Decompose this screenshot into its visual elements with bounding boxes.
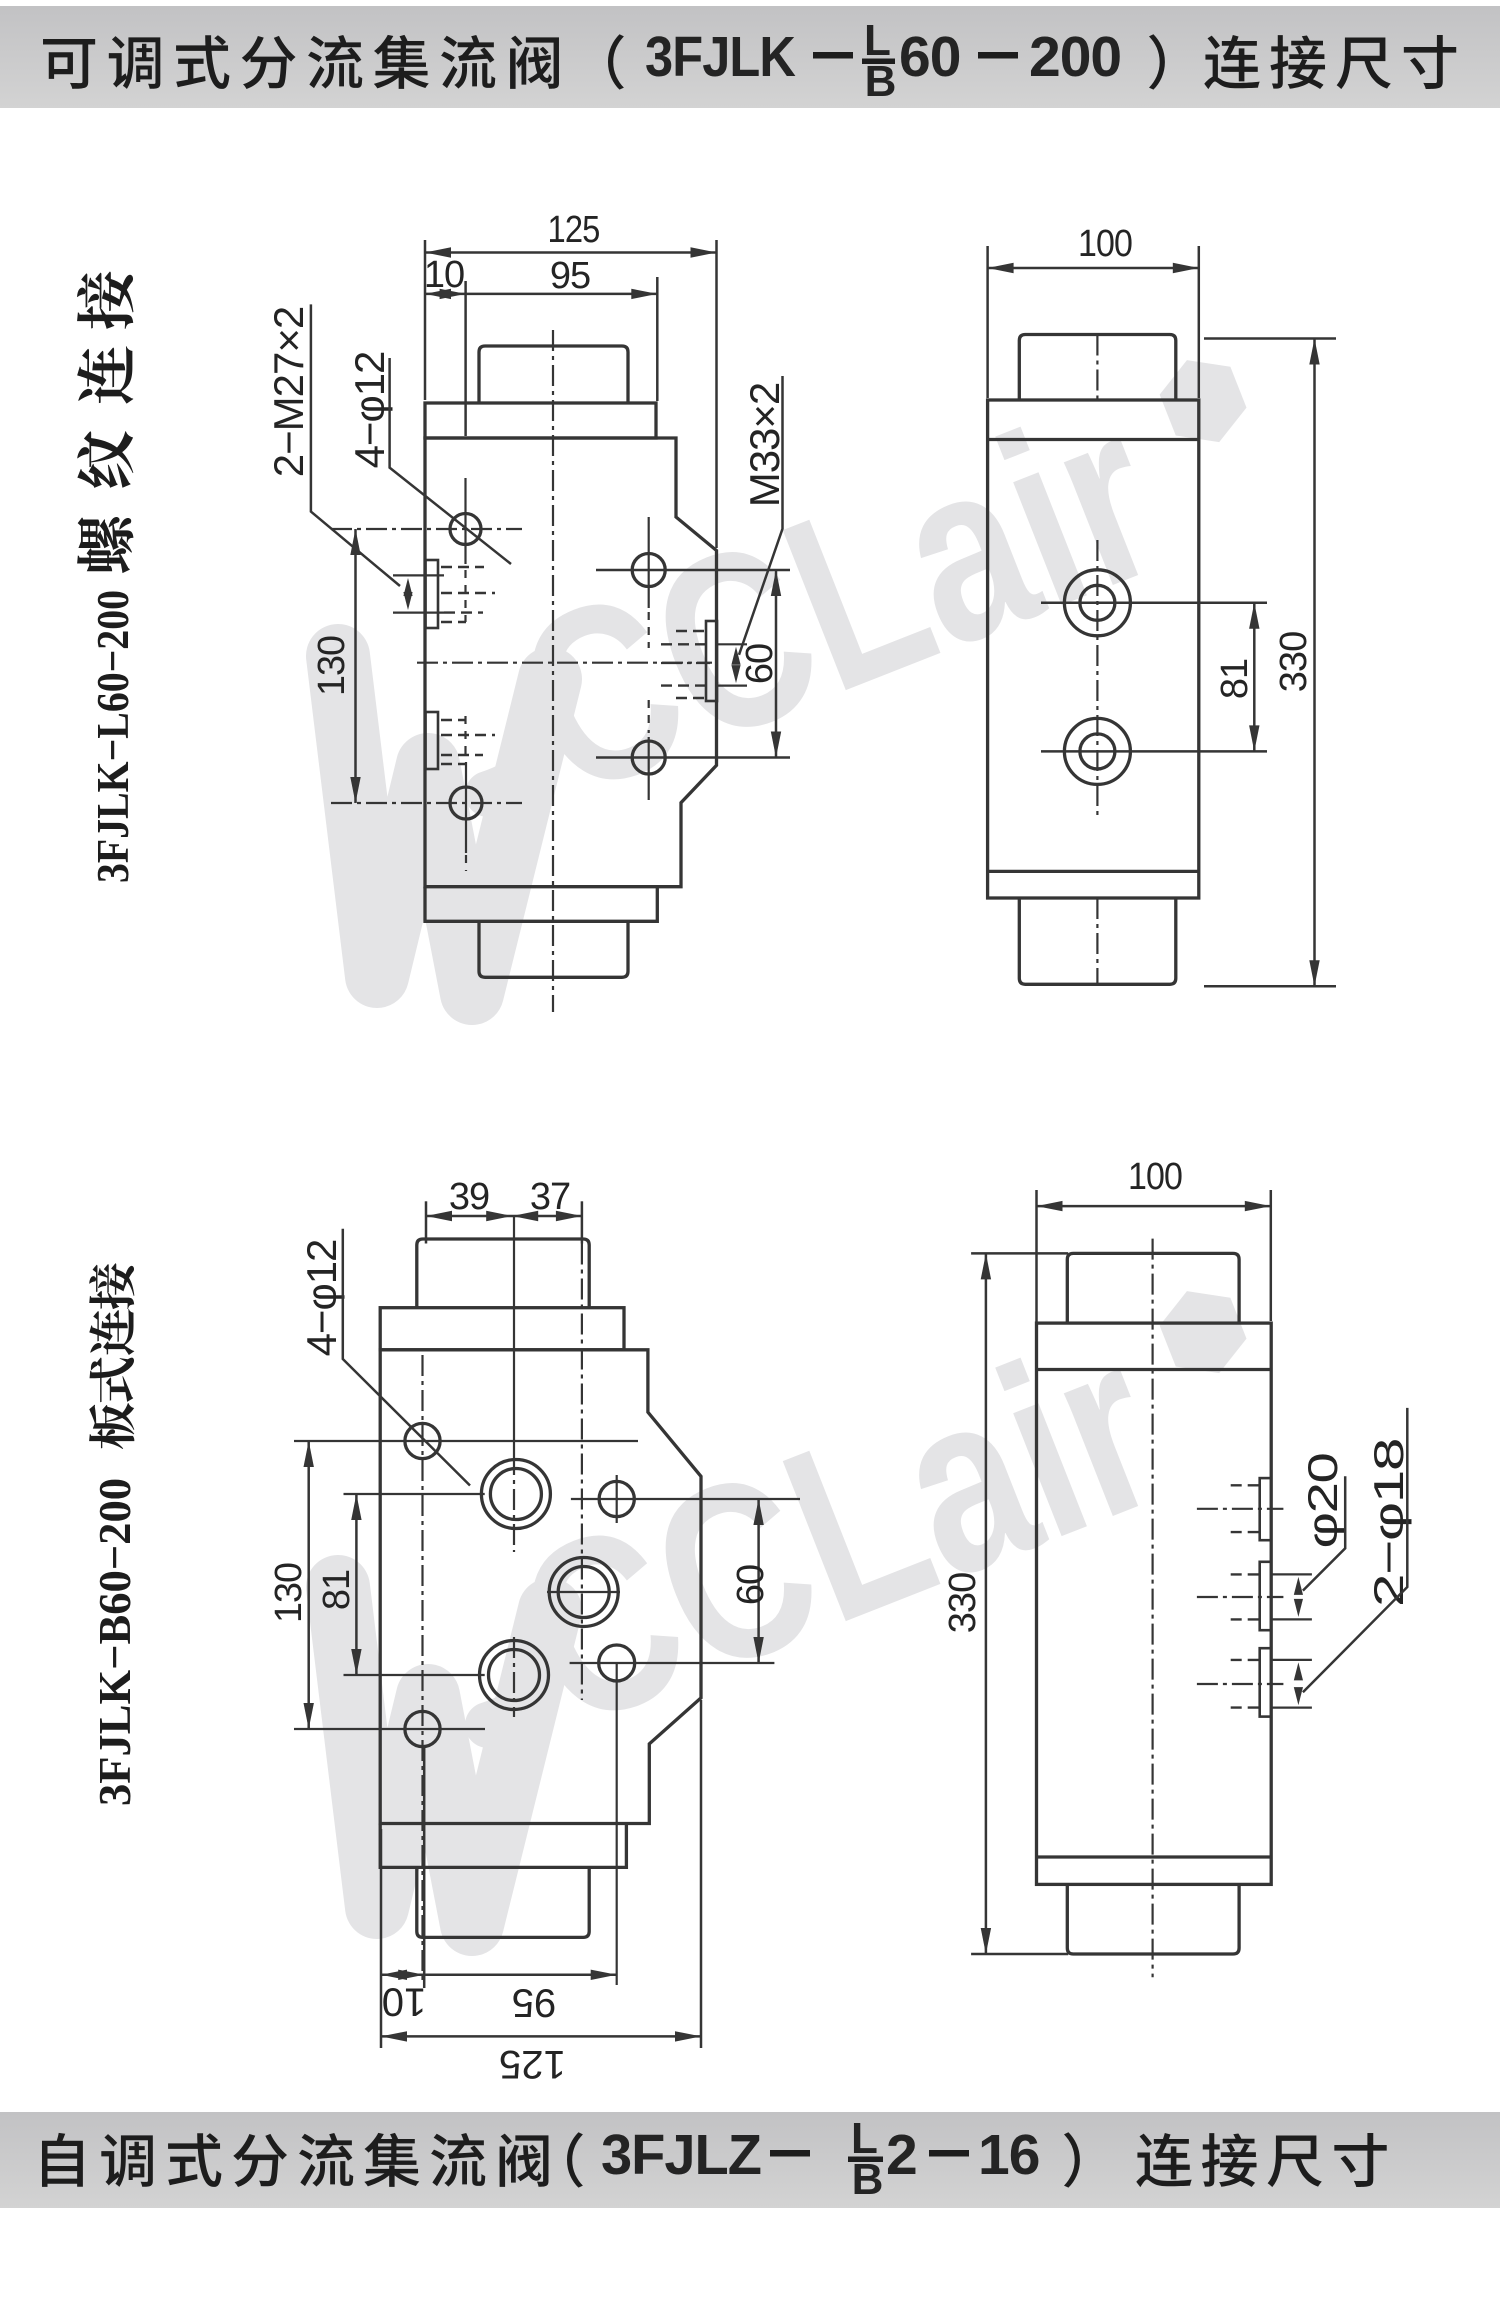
svg-text:100: 100 [1078, 223, 1132, 265]
svg-text:B: B [852, 2155, 883, 2204]
svg-text:2−φ18: 2−φ18 [1365, 1439, 1412, 1607]
svg-text:60: 60 [899, 25, 960, 89]
svg-text:81: 81 [316, 1570, 358, 1610]
svg-text:3FJLK−L60−200: 3FJLK−L60−200 [87, 590, 138, 883]
svg-text:130: 130 [268, 1563, 310, 1623]
svg-text:10: 10 [382, 1980, 427, 2024]
svg-text:3FJLK: 3FJLK [645, 25, 796, 89]
svg-text:2−M27×2: 2−M27×2 [265, 307, 312, 477]
svg-text:100: 100 [1128, 1156, 1182, 1198]
svg-text:3FJLZ: 3FJLZ [601, 2123, 761, 2187]
svg-text:4−φ12: 4−φ12 [346, 352, 393, 469]
svg-text:60: 60 [739, 644, 781, 684]
svg-text:16: 16 [978, 2123, 1039, 2187]
svg-text:81: 81 [1214, 659, 1256, 699]
svg-text:95: 95 [512, 1981, 557, 2025]
svg-text:B: B [865, 57, 896, 106]
svg-text:37: 37 [530, 1176, 570, 1218]
svg-text:10: 10 [424, 254, 464, 296]
svg-text:330: 330 [1273, 632, 1315, 692]
svg-text:95: 95 [550, 255, 590, 297]
svg-text:60: 60 [730, 1565, 772, 1605]
svg-text:M33×2: M33×2 [741, 383, 788, 508]
svg-text:330: 330 [942, 1573, 984, 1633]
svg-text:φ20: φ20 [1299, 1454, 1346, 1549]
svg-text:200: 200 [1029, 25, 1121, 89]
svg-text:125: 125 [548, 209, 600, 251]
svg-text:3FJLK−B60−200: 3FJLK−B60−200 [89, 1478, 140, 1806]
svg-text:39: 39 [449, 1176, 489, 1218]
svg-text:2: 2 [886, 2123, 917, 2187]
svg-text:130: 130 [311, 636, 353, 696]
svg-text:4−φ12: 4−φ12 [298, 1240, 345, 1357]
svg-text:125: 125 [499, 2042, 566, 2086]
